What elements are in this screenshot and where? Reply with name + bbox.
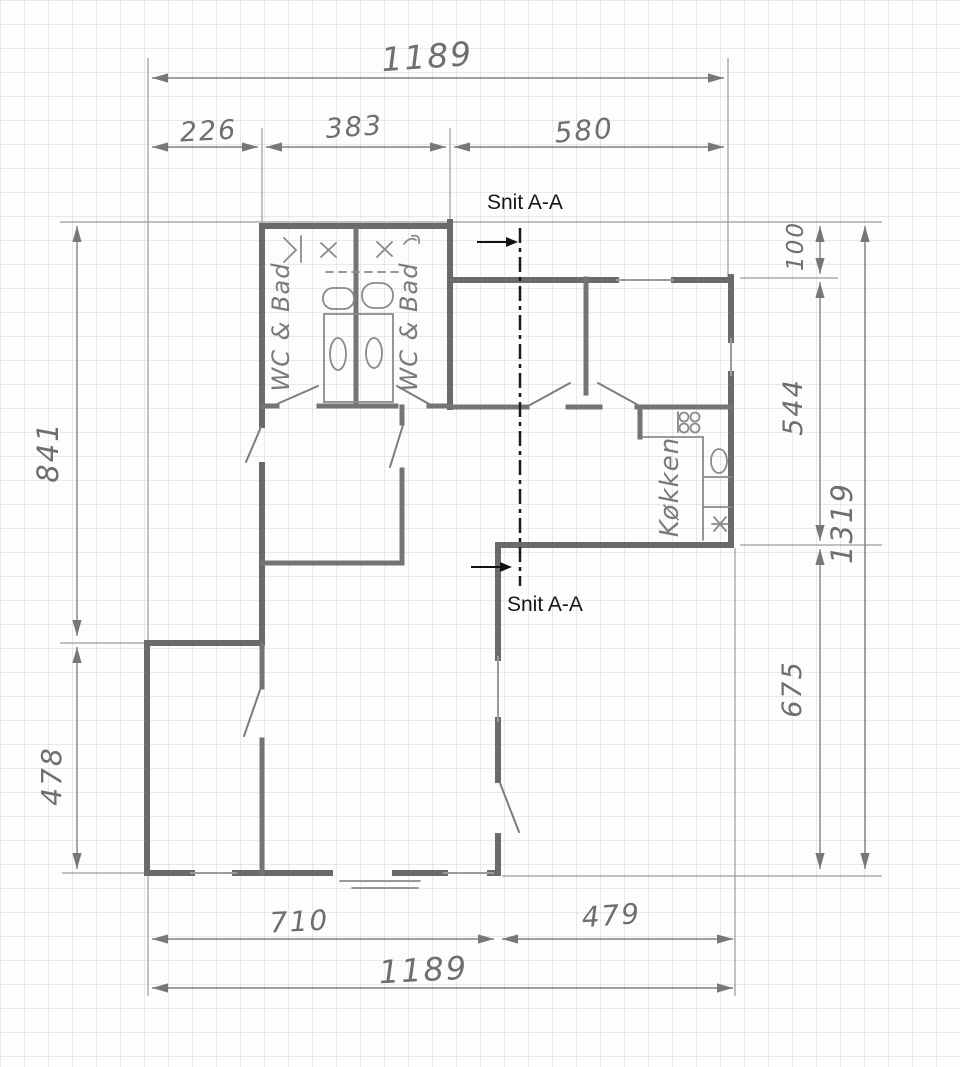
dim-label-top-total: 1189 [380,34,474,79]
section-line-group: Snit A-A Snit A-A [471,191,583,616]
dim-label-675: 675 [777,660,808,718]
dim-label-100: 100 [783,221,809,271]
toilet-left [330,338,346,370]
dim-label-544: 544 [778,378,809,436]
corner-scribble [404,236,419,244]
exterior-walls [147,222,731,873]
section-label-top: Snit A-A [487,191,563,214]
entrance-step [340,881,420,888]
vent-x-mark-left [321,243,336,257]
dimension-lines [77,78,865,988]
stove-burner [691,424,700,433]
sink-left [323,288,354,309]
kitchen-sink [711,449,727,473]
stove-burner [680,413,689,422]
room-label-bath-left: WC & Bad [267,263,295,392]
dim-label-580: 580 [553,112,615,150]
dim-label-710: 710 [269,903,330,939]
door-eastwing-left-leaf [530,383,570,405]
room-label-bath-right: WC & Bad [395,263,423,392]
stove-burner [680,424,689,433]
toilet-right [366,338,382,368]
door-lower-partition [244,690,260,736]
vent-x-mark-right [377,242,392,257]
section-arrowhead-bottom-icon [500,562,512,572]
appliance-asterisk [712,517,728,531]
dim-label-right-total: 1319 [825,482,859,564]
door-eastwing-right-leaf [598,383,638,405]
extension-lines [60,58,882,996]
room-label-kitchen: Køkken [655,437,685,537]
dim-label-383: 383 [325,110,385,145]
vent-v-mark [284,238,296,262]
door-west-exterior [246,427,261,462]
floor-plan-drawing: 1189 226 383 580 841 478 100 544 675 131… [0,0,960,1067]
sink-right [362,283,393,308]
section-label-bottom: Snit A-A [507,593,583,616]
graph-paper-sheet: 1189 226 383 580 841 478 100 544 675 131… [0,0,960,1067]
dim-label-478: 478 [35,746,68,805]
dim-label-226: 226 [179,115,238,149]
door-east-exterior [500,783,519,832]
door-middle-room [390,425,403,467]
dim-label-479: 479 [581,897,643,934]
dim-label-bottom-total: 1189 [378,949,469,992]
section-arrowhead-top-icon [506,237,518,247]
room-labels: WC & Bad WC & Bad Køkken [267,263,685,538]
stove-burner [691,413,700,422]
dim-label-841: 841 [31,421,65,482]
